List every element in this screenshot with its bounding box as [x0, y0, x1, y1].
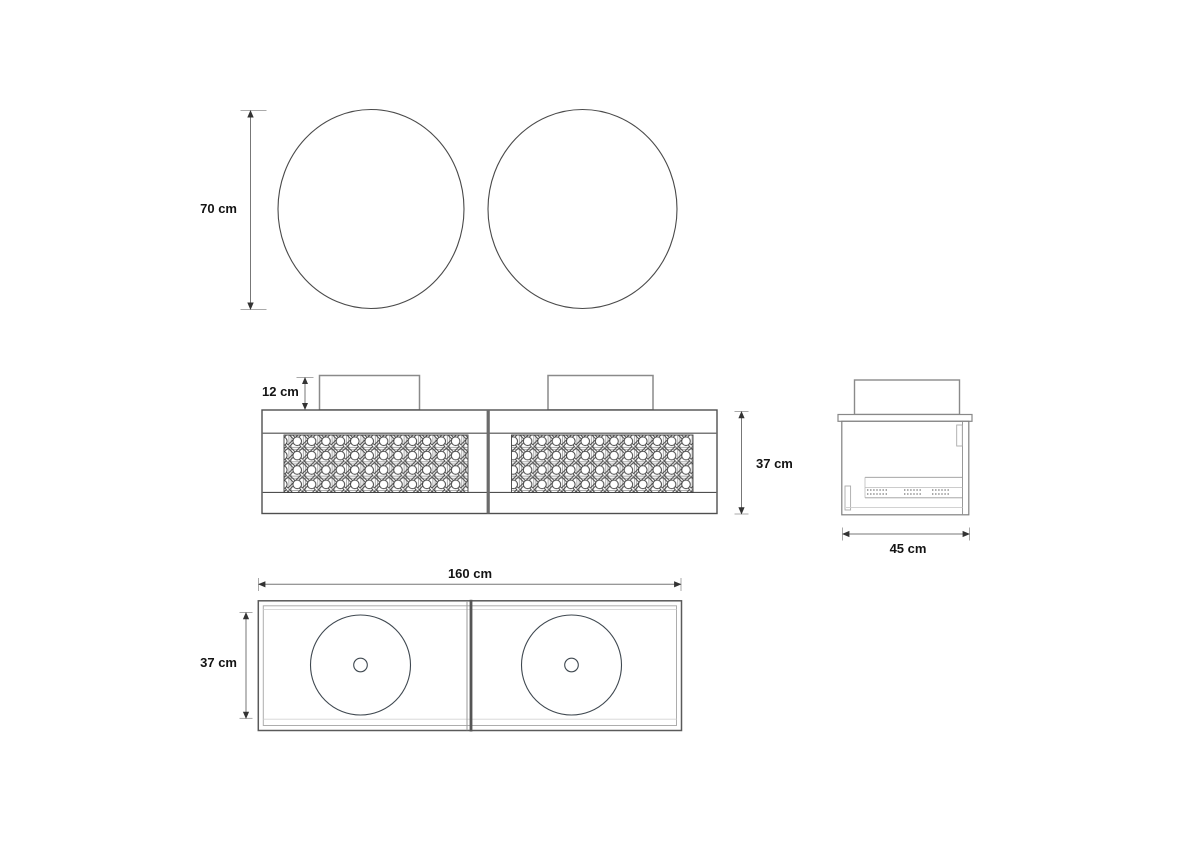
front-center-divider — [487, 410, 490, 514]
side-view — [838, 380, 972, 515]
cane-panel-left — [284, 435, 468, 493]
front-basin-right — [548, 376, 653, 411]
dimension-plan-depth — [240, 612, 253, 719]
mirror-right-circle — [488, 110, 677, 309]
total-width-label: 160 cm — [430, 567, 510, 581]
cabinet-height-label: 37 cm — [756, 457, 793, 471]
vanity-technical-drawing — [0, 0, 1191, 842]
cane-panel-right — [512, 435, 694, 493]
side-countertop — [838, 415, 972, 422]
arrow-down-icon — [247, 303, 253, 311]
front-basin-left — [320, 376, 420, 411]
side-basin — [855, 380, 960, 415]
plan-view — [258, 600, 681, 732]
dimension-cabinet-height — [735, 411, 749, 515]
arrow-down-icon — [738, 507, 744, 514]
plan-depth-label: 37 cm — [200, 656, 237, 670]
arrow-up-icon — [302, 377, 308, 384]
arrow-left-icon — [258, 581, 265, 587]
mirror-left-circle — [278, 110, 464, 309]
arrow-right-icon — [963, 531, 970, 537]
mirror-height-label: 70 cm — [197, 202, 237, 216]
dimension-mirror-height — [241, 110, 267, 310]
arrow-left-icon — [842, 531, 849, 537]
basin-height-label: 12 cm — [262, 385, 298, 399]
arrow-up-icon — [738, 411, 744, 418]
front-view — [262, 376, 717, 514]
side-depth-label: 45 cm — [868, 542, 948, 556]
mirror-view — [278, 110, 677, 309]
arrow-down-icon — [302, 403, 308, 410]
dimension-side-depth — [842, 528, 970, 541]
side-hinge-detail-bottom — [845, 486, 851, 510]
arrow-right-icon — [674, 581, 681, 587]
arrow-up-icon — [247, 110, 253, 118]
side-cabinet-body — [842, 421, 969, 515]
side-hinge-detail-top — [957, 425, 963, 446]
plan-center-divider — [470, 600, 473, 732]
technical-drawing-sheet: 70 cm 12 cm 37 cm 45 cm 160 cm 37 cm — [0, 0, 1191, 842]
dimension-basin-height — [297, 377, 314, 410]
arrow-up-icon — [243, 612, 249, 619]
